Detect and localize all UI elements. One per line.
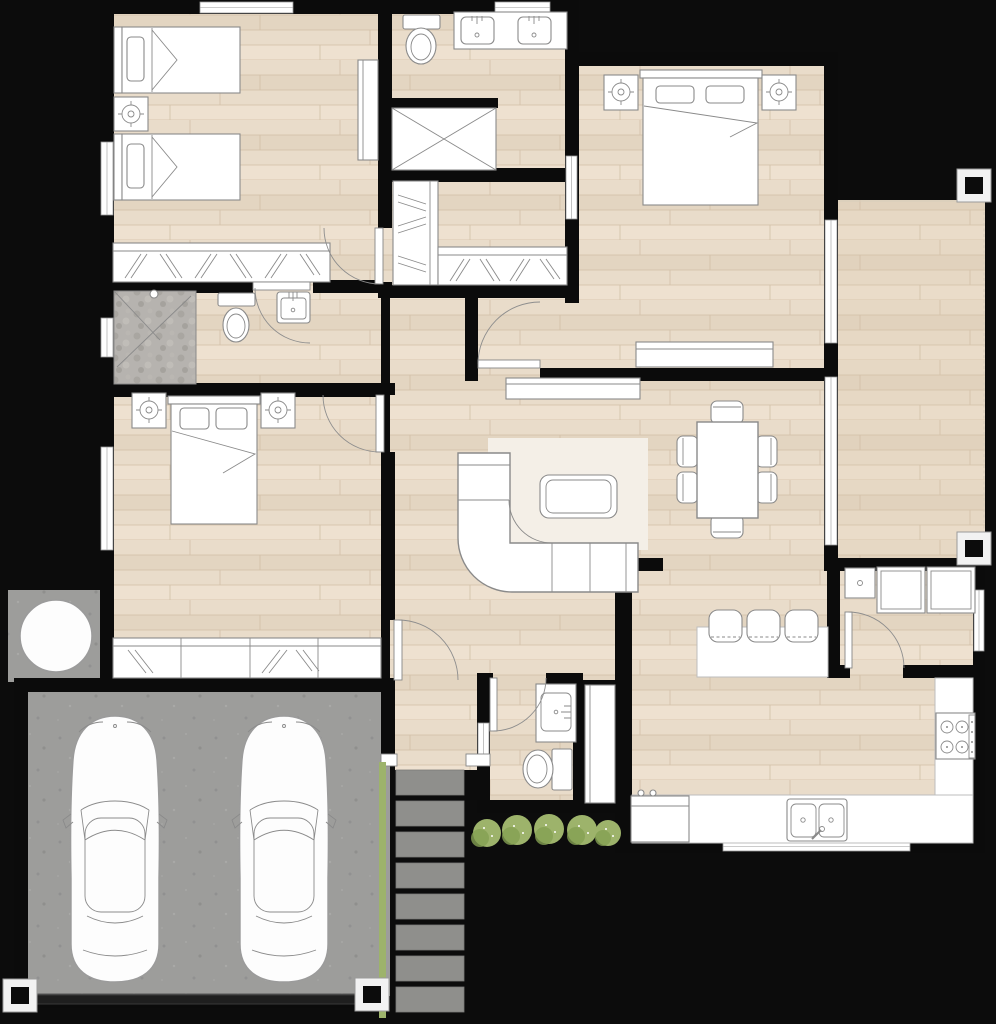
bush-icon (502, 815, 532, 845)
bar-stool (785, 610, 818, 642)
bush-icon (595, 820, 621, 846)
pebble-shower (114, 290, 196, 384)
pocket-door-panel (585, 685, 615, 803)
sliding-closet (113, 638, 381, 678)
headboard (114, 134, 122, 200)
vanity-sink (536, 684, 576, 742)
dryer (927, 567, 975, 613)
column (957, 169, 991, 202)
garage-door (37, 995, 357, 1004)
round-pad (20, 600, 92, 672)
washer (877, 567, 925, 613)
sliding-window-master-deck (825, 220, 837, 343)
window (200, 2, 293, 13)
floor-entry-hall (395, 560, 477, 770)
bar-stool (709, 610, 742, 642)
pillow (127, 37, 144, 81)
coffee-table (540, 475, 617, 518)
wardrobe (358, 60, 378, 160)
dining-chair (756, 436, 777, 467)
cabinet (845, 568, 875, 598)
dresser (636, 342, 773, 367)
dining-chair (677, 472, 698, 503)
tv-console (506, 378, 640, 399)
shower-tub (392, 108, 496, 170)
dining-table (697, 422, 758, 518)
window (495, 2, 550, 13)
pillow (216, 408, 247, 429)
headboard (640, 70, 762, 78)
dining-chair (711, 401, 743, 424)
window (101, 142, 113, 215)
double-sink (787, 799, 847, 841)
dining-chair (677, 436, 698, 467)
window (101, 447, 113, 550)
column (3, 979, 37, 1012)
deck-tint (838, 200, 985, 558)
pillow (656, 86, 694, 103)
bush-icon (567, 815, 597, 845)
column (957, 532, 991, 565)
cooktop (936, 713, 975, 759)
floor-plan-canvas (0, 0, 996, 1024)
column (355, 978, 389, 1011)
dishwasher (631, 790, 689, 842)
pocket-door-master-bath (566, 156, 577, 219)
toilet (523, 749, 572, 790)
headboard (114, 27, 122, 93)
pillow (180, 408, 209, 429)
sliding-window-living-deck (825, 377, 837, 545)
car (232, 716, 336, 982)
window (101, 318, 113, 357)
pillow (706, 86, 744, 103)
dining-chair (756, 472, 777, 503)
floor-plan (0, 0, 996, 1024)
car (63, 716, 167, 982)
headboard (168, 396, 260, 404)
wall-sink (277, 292, 310, 323)
pillow (127, 144, 144, 188)
double-sink-vanity (454, 12, 567, 49)
kids-closet (113, 243, 330, 282)
bar-stool (747, 610, 780, 642)
